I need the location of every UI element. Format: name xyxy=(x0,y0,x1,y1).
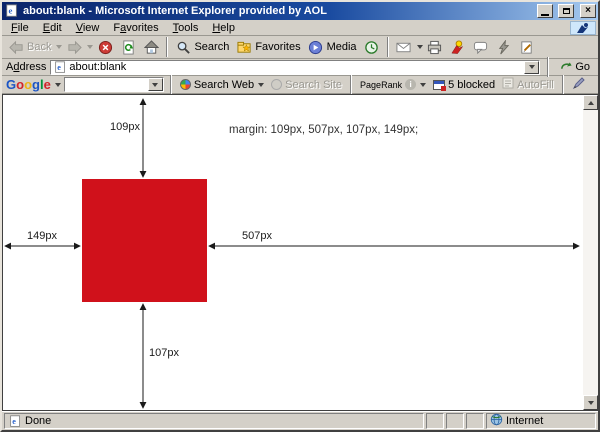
menu-favorites[interactable]: Favorites xyxy=(106,21,165,35)
margin-top-label: 109px xyxy=(105,121,140,133)
status-pane-empty xyxy=(466,413,484,429)
info-icon: i xyxy=(405,79,416,90)
pagerank-label: PageRank xyxy=(360,80,402,90)
status-pane-empty xyxy=(446,413,464,429)
menu-edit[interactable]: Edit xyxy=(36,21,69,35)
google-search-dropdown-button[interactable] xyxy=(148,78,163,91)
search-site-icon xyxy=(271,79,282,90)
svg-text:e: e xyxy=(9,6,13,16)
highlight-button[interactable] xyxy=(570,74,587,95)
search-button[interactable]: Search xyxy=(172,37,232,58)
margin-right-label: 507px xyxy=(242,230,272,242)
ie-page-icon: e xyxy=(53,61,67,74)
scroll-up-button[interactable] xyxy=(583,95,598,110)
search-web-dropdown-icon xyxy=(258,83,264,87)
edit-icon xyxy=(519,39,535,55)
restore-icon xyxy=(563,8,570,14)
menu-tools[interactable]: Tools xyxy=(166,21,206,35)
go-icon xyxy=(560,60,573,75)
globe-icon xyxy=(490,413,503,429)
google-dropdown-icon[interactable] xyxy=(55,83,61,87)
media-icon xyxy=(308,39,324,55)
history-icon xyxy=(364,39,380,55)
popup-blocker-button[interactable]: 5 blocked xyxy=(431,74,497,95)
status-pane: e Done xyxy=(4,413,424,429)
favorites-label: Favorites xyxy=(255,41,300,53)
aim-icon xyxy=(450,39,466,55)
home-button[interactable] xyxy=(140,37,162,58)
back-dropdown-icon[interactable] xyxy=(56,45,62,49)
stop-icon xyxy=(97,39,113,55)
back-icon xyxy=(8,39,24,55)
standard-toolbar: Back Search xyxy=(2,36,598,59)
favorites-button[interactable]: Favorites xyxy=(233,37,303,58)
minimize-icon xyxy=(541,14,549,16)
refresh-icon xyxy=(120,39,136,55)
window-title: about:blank - Microsoft Internet Explore… xyxy=(23,5,534,17)
security-zone-pane: Internet xyxy=(486,413,596,429)
toolbar-separator xyxy=(387,37,389,57)
media-button[interactable]: Media xyxy=(305,37,360,58)
refresh-button[interactable] xyxy=(117,37,139,58)
menu-help[interactable]: Help xyxy=(205,21,242,35)
status-bar: e Done Internet xyxy=(2,411,598,430)
search-site-button[interactable]: Search Site xyxy=(269,74,344,95)
toolbar-separator xyxy=(166,37,168,57)
triangle-down-icon xyxy=(588,401,594,405)
address-input[interactable] xyxy=(69,61,522,73)
restore-button[interactable] xyxy=(558,4,574,18)
vertical-scrollbar[interactable] xyxy=(583,94,598,411)
zone-label: Internet xyxy=(506,415,543,427)
scrollbar-track[interactable] xyxy=(583,110,598,395)
back-button[interactable]: Back xyxy=(5,37,54,58)
home-icon xyxy=(143,39,159,55)
popup-blocked-icon xyxy=(433,80,445,90)
print-button[interactable] xyxy=(424,37,446,58)
svg-text:e: e xyxy=(57,62,61,71)
menu-file[interactable]: File xyxy=(4,21,36,35)
search-site-label: Search Site xyxy=(285,79,342,91)
go-button[interactable]: Go xyxy=(556,60,594,75)
autofill-button[interactable]: AutoFill xyxy=(500,74,556,95)
mail-button[interactable] xyxy=(393,37,415,58)
aol-throbber-icon xyxy=(570,21,596,35)
triangle-up-icon xyxy=(588,101,594,105)
title-bar: e about:blank - Microsoft Internet Explo… xyxy=(2,2,598,20)
ie-page-icon: e xyxy=(4,3,20,19)
margin-css-text: margin: 109px, 507px, 107px, 149px; xyxy=(229,124,418,136)
pen-icon xyxy=(572,77,585,93)
discuss-button[interactable] xyxy=(470,37,492,58)
close-button[interactable]: × xyxy=(580,4,596,18)
autofill-label: AutoFill xyxy=(517,79,554,91)
print-icon xyxy=(427,39,443,55)
pagerank-dropdown-icon xyxy=(420,83,426,87)
rendered-page: 109px 149px 507px 107px margin: 109px, 5… xyxy=(2,94,583,411)
messenger-button[interactable] xyxy=(493,37,515,58)
chevron-down-icon xyxy=(152,83,158,87)
search-web-button[interactable]: Search Web xyxy=(178,74,266,95)
address-dropdown-button[interactable] xyxy=(524,61,539,74)
search-label: Search xyxy=(194,41,229,53)
margin-bottom-label: 107px xyxy=(149,347,179,359)
menu-view[interactable]: View xyxy=(69,21,107,35)
google-search-field-wrap xyxy=(64,77,164,92)
discuss-icon xyxy=(473,39,489,55)
mail-icon xyxy=(396,39,412,55)
dimension-arrows xyxy=(3,95,582,410)
lightning-icon xyxy=(496,39,512,55)
google-search-input[interactable] xyxy=(65,79,148,91)
forward-icon xyxy=(66,39,82,55)
pagerank-button[interactable]: PageRank i xyxy=(358,74,428,95)
margin-left-label: 149px xyxy=(16,230,68,242)
edit-button[interactable] xyxy=(516,37,538,58)
address-field-wrap: e xyxy=(50,60,540,75)
ie-page-icon: e xyxy=(8,414,22,428)
autofill-icon xyxy=(502,77,514,92)
toolbar-separator xyxy=(562,75,564,95)
history-button[interactable] xyxy=(361,37,383,58)
google-logo[interactable]: Google xyxy=(6,77,51,92)
forward-button[interactable] xyxy=(63,37,85,58)
close-icon: × xyxy=(585,6,591,16)
status-text: Done xyxy=(25,415,51,427)
toolbar-separator xyxy=(170,75,172,95)
browser-viewport: 109px 149px 507px 107px margin: 109px, 5… xyxy=(2,94,598,411)
go-label: Go xyxy=(575,61,590,73)
stop-button[interactable] xyxy=(94,37,116,58)
favorites-icon xyxy=(236,39,252,55)
minimize-button[interactable] xyxy=(537,4,553,18)
google-toolbar: Google Search Web Search Site PageRank i… xyxy=(2,76,598,94)
back-label: Back xyxy=(27,41,51,53)
address-label: Address xyxy=(6,61,46,73)
toolbar-separator xyxy=(350,75,352,95)
menu-bar: File Edit View Favorites Tools Help xyxy=(2,20,598,36)
search-web-label: Search Web xyxy=(194,79,254,91)
status-pane-empty xyxy=(426,413,444,429)
browser-window: e about:blank - Microsoft Internet Explo… xyxy=(0,0,600,432)
scroll-down-button[interactable] xyxy=(583,395,598,410)
mail-dropdown-icon[interactable] xyxy=(417,45,423,49)
chevron-down-icon xyxy=(529,65,535,69)
media-label: Media xyxy=(327,41,357,53)
aim-button[interactable] xyxy=(447,37,469,58)
svg-text:e: e xyxy=(12,416,16,425)
search-icon xyxy=(175,39,191,55)
google-ball-icon xyxy=(180,79,191,90)
forward-dropdown-icon[interactable] xyxy=(87,45,93,49)
blocked-label: 5 blocked xyxy=(448,79,495,91)
